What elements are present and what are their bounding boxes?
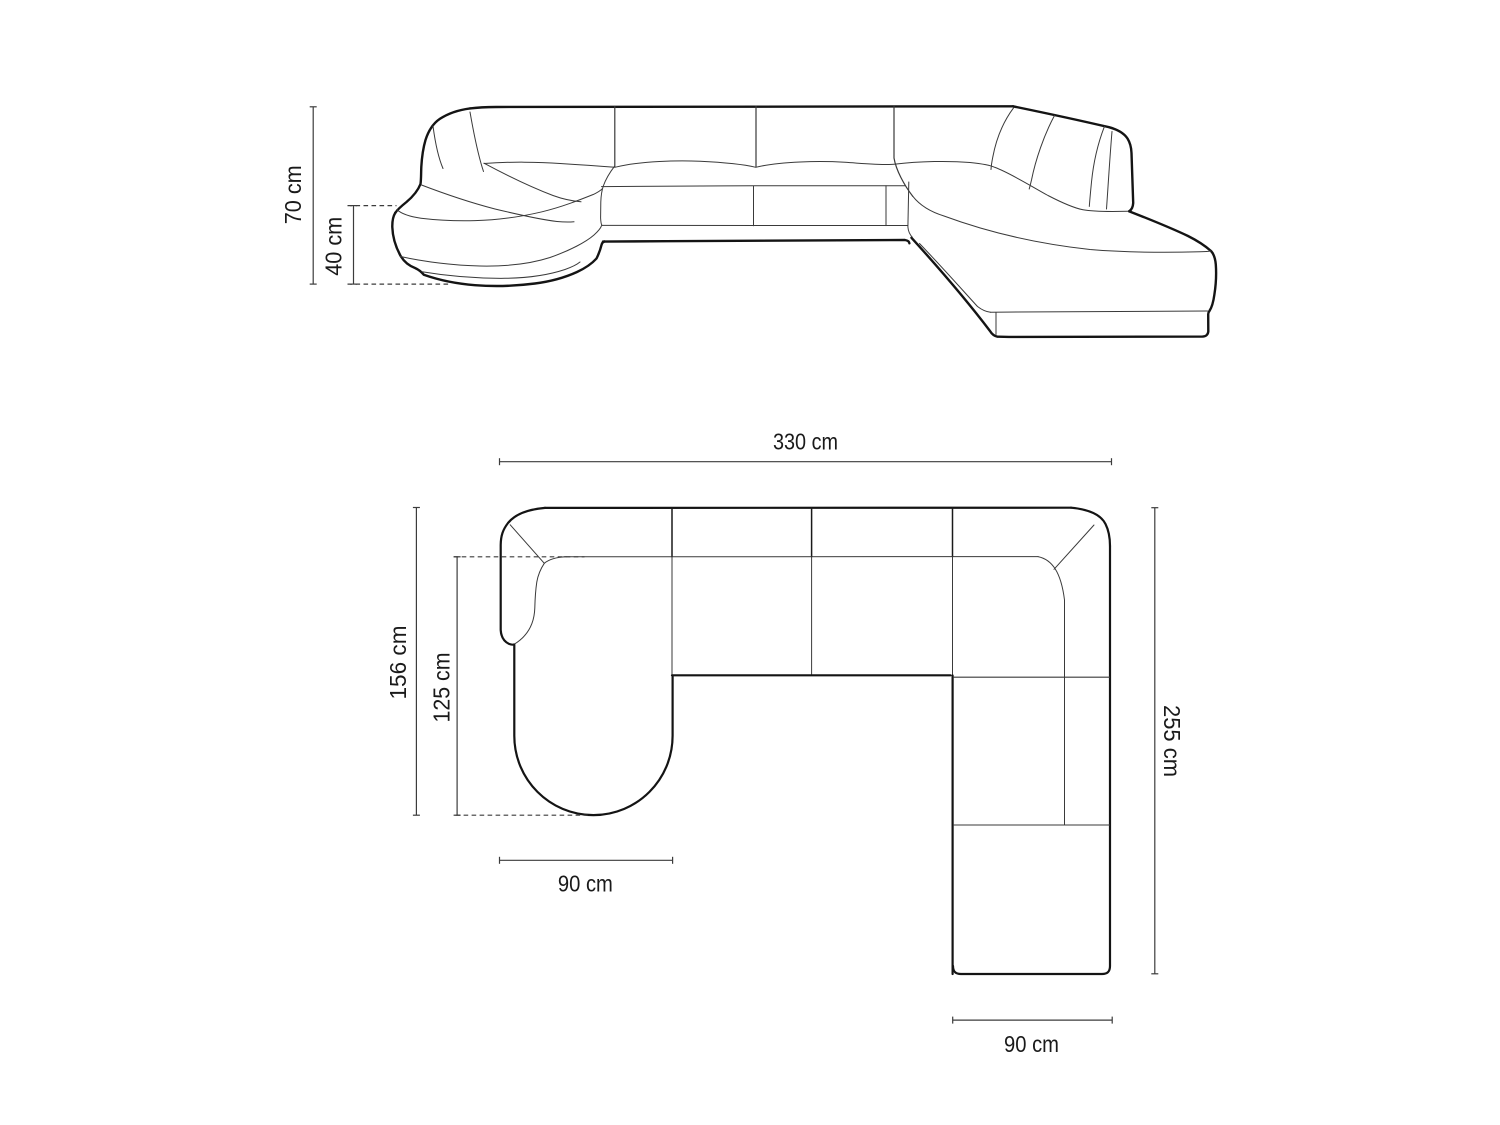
svg-text:156 cm: 156 cm <box>385 626 411 700</box>
svg-text:125 cm: 125 cm <box>428 653 454 723</box>
svg-text:90 cm: 90 cm <box>1004 1031 1059 1057</box>
svg-text:40 cm: 40 cm <box>320 217 346 276</box>
svg-text:90 cm: 90 cm <box>558 871 613 897</box>
svg-text:330 cm: 330 cm <box>773 428 838 454</box>
svg-text:70 cm: 70 cm <box>280 165 306 224</box>
svg-text:255 cm: 255 cm <box>1159 705 1185 777</box>
